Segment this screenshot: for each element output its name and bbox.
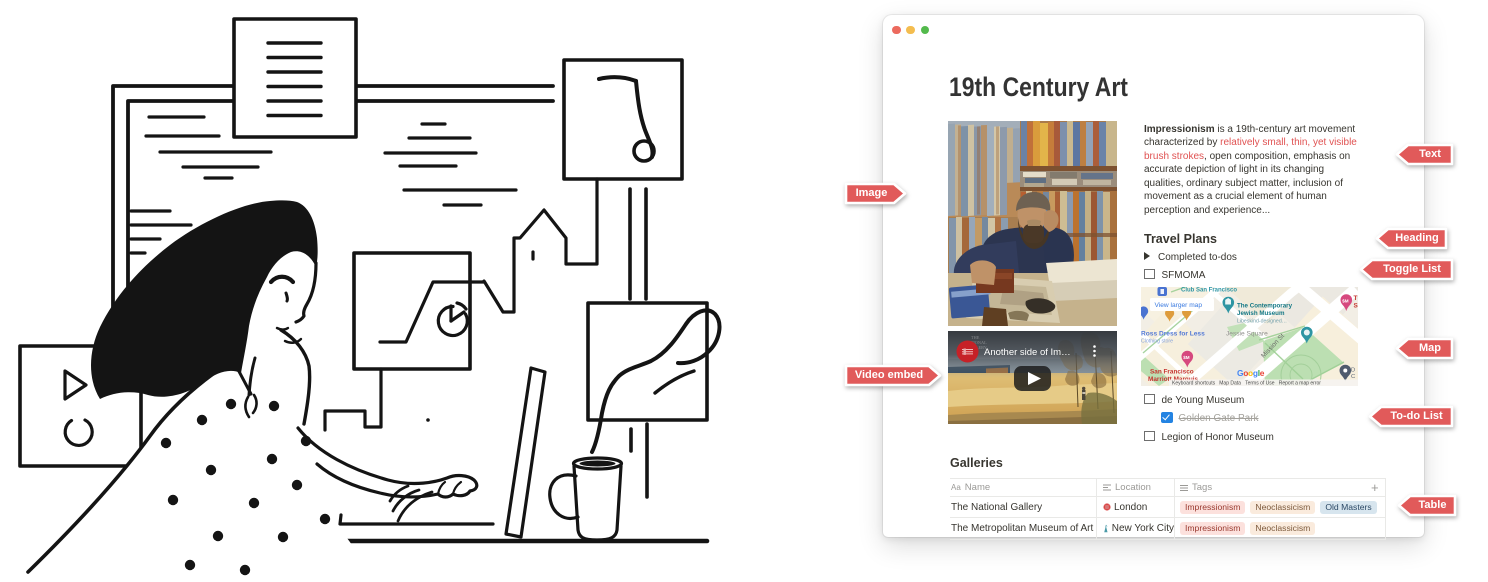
svg-text:San Francisco: San Francisco (1150, 369, 1194, 376)
svg-text:T: T (1354, 295, 1358, 302)
svg-text:$M: $M (1342, 299, 1349, 304)
svg-text:S: S (1354, 303, 1359, 310)
svg-text:C: C (1351, 374, 1355, 380)
svg-text:Libeskind-designed…: Libeskind-designed… (1237, 319, 1287, 325)
svg-text:Clothing store: Clothing store (1141, 339, 1173, 345)
svg-text:Another side of Im…: Another side of Im… (984, 347, 1071, 358)
svg-text:Keyboard shortcuts Map Data: Keyboard shortcuts Map Data Terms of Use… (1172, 381, 1321, 387)
svg-text:Jewish Museum: Jewish Museum (1237, 310, 1285, 317)
svg-text:D: D (1351, 368, 1355, 374)
svg-text:The Contemporary: The Contemporary (1237, 303, 1293, 310)
svg-text:Ross Dress for Less: Ross Dress for Less (1141, 331, 1205, 338)
svg-text:Jessie Square: Jessie Square (1226, 331, 1268, 338)
svg-text:View larger map: View larger map (1155, 302, 1203, 309)
svg-text:$M: $M (1183, 355, 1190, 360)
svg-text:Club San Francisco: Club San Francisco (1181, 288, 1237, 294)
svg-text:Google: Google (1237, 368, 1265, 378)
